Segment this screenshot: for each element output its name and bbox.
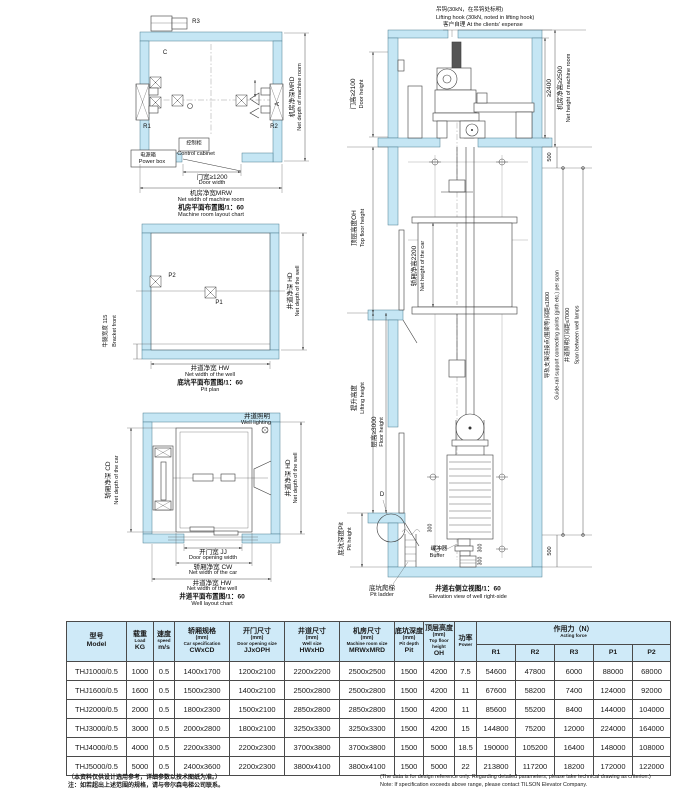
well-depth-cn: 井道净深 HD — [286, 459, 293, 496]
table-cell: 1400x1700 — [175, 662, 230, 681]
table-cell: THJ1000/0.5 — [67, 662, 127, 681]
table-cell: 144000 — [594, 700, 633, 719]
machine-room-door — [398, 60, 404, 71]
header-line-en: Top floor height — [425, 639, 454, 649]
table-cell: 3700x3800 — [340, 738, 395, 757]
table-row-THJ5000/0.5: THJ5000/0.550000.52400x36002200x23003800… — [67, 757, 671, 776]
column-header-0: 型号Model — [67, 622, 127, 662]
table-cell: 4200 — [424, 662, 455, 681]
dim-300-b: 300 — [478, 544, 483, 553]
door-height-en: Door height — [360, 80, 366, 109]
car-width-en: Net width of the car — [189, 571, 237, 577]
door-height-cn: 门高≥2100 — [351, 78, 358, 109]
table-cell: 1500x2300 — [175, 681, 230, 700]
header-line-code: CWxCD — [175, 647, 229, 655]
table-cell: 12000 — [555, 719, 594, 738]
table-cell: 88000 — [594, 662, 633, 681]
table-cell: 172000 — [594, 757, 633, 776]
header-line-code: Pit — [395, 647, 423, 655]
floor-height-en: Floor height — [380, 417, 386, 447]
header-line-code: OH — [424, 650, 454, 658]
table-cell: 4200 — [424, 681, 455, 700]
force-col-header-R1: R1 — [477, 645, 516, 662]
table-cell: 0.5 — [154, 757, 175, 776]
label-r1: R1 — [143, 124, 151, 130]
table-cell: 1500 — [395, 662, 424, 681]
well-lamp-symbol — [262, 427, 268, 433]
header-line-cn: 速度 — [154, 631, 174, 639]
table-cell: THJ3000/0.5 — [67, 719, 127, 738]
table-cell: 4000 — [127, 738, 154, 757]
table-cell: 2200x3300 — [175, 738, 230, 757]
table-cell: 67600 — [477, 681, 516, 700]
table-cell: 1500 — [395, 700, 424, 719]
header-line-cn: 功率 — [455, 635, 476, 643]
rail-spacing-cn: 导轨支架连接点(围梁等)间距≤1800 — [546, 292, 552, 378]
buffer-label-en: Buffer — [430, 554, 445, 560]
power-box-label-en: Power box — [139, 160, 165, 166]
label-r2: R2 — [270, 124, 278, 130]
lamp-spacing-cn: 井道照明灯间距≤7000 — [566, 308, 572, 363]
table-cell: 7400 — [555, 681, 594, 700]
table-cell: THJ4000/0.5 — [67, 738, 127, 757]
table-cell: 2200x2300 — [230, 757, 285, 776]
table-cell: 224000 — [594, 719, 633, 738]
header-line-code: KG — [127, 644, 153, 652]
well-width-en: Net width of the well — [187, 587, 237, 593]
mr-caption-en: Machine room layout chart — [178, 213, 244, 219]
table-cell: 3700x3800 — [285, 738, 340, 757]
buffer-label-cn: 缓冲器 — [431, 547, 448, 553]
machine-room-plan — [131, 16, 309, 193]
table-cell: 5000 — [424, 738, 455, 757]
force-col-header-P1: P1 — [594, 645, 633, 662]
table-cell: 0.5 — [154, 662, 175, 681]
table-cell: 148000 — [594, 738, 633, 757]
table-cell: 3000 — [127, 719, 154, 738]
header-line-en: Car specification — [176, 642, 227, 647]
buffer — [458, 539, 470, 546]
column-header-8: 顶层高度(mm)Top floor heightOH — [424, 622, 455, 662]
table-cell: 3250x3300 — [285, 719, 340, 738]
mr-height-cn: 机房净高≥2500 — [558, 66, 565, 110]
dim-500-bottom: 500 — [548, 546, 554, 555]
traction-machine — [408, 42, 534, 138]
well-depth-en: Net depth of the well — [294, 453, 300, 504]
table-cell: 11 — [455, 700, 477, 719]
well-caption-en: Well layout chart — [191, 602, 232, 608]
column-header-4: 开门尺寸(mm)Door opening sizeJJxOPH — [230, 622, 285, 662]
header-line-code: m/s — [154, 644, 174, 652]
table-cell: 0.5 — [154, 681, 175, 700]
table-cell: 1800x2100 — [230, 719, 285, 738]
table-cell: 5000 — [424, 757, 455, 776]
acting-force-en: Acting force — [482, 634, 665, 639]
footnotes: （本资料仅供设计选用参考，详细参数以技术图纸为准。） 注：如若超出上述范围的规格… — [68, 774, 674, 790]
force-col-header-R3: R3 — [555, 645, 594, 662]
note-cn-1: （本资料仅供设计选用参考，详细参数以技术图纸为准。） — [68, 774, 368, 782]
control-cabinet-label-en: Control cabinet — [177, 152, 215, 158]
dim-300-a: 300 — [428, 524, 433, 533]
column-header-9: 功率Power — [455, 622, 477, 662]
spec-table: 型号Model载重LoadKG速度speedm/s轿厢规格(mm)Car spe… — [66, 621, 671, 776]
force-col-header-R2: R2 — [516, 645, 555, 662]
table-cell: 3800x4100 — [340, 757, 395, 776]
floor-height-cn: 层高≥3000 — [372, 416, 379, 447]
header-line-mm: (mm) — [285, 636, 339, 642]
hook-note-en: Lifting hook (30kN, noted in lifting hoo… — [436, 16, 534, 22]
header-line-cn: 型号 — [67, 633, 126, 641]
label-a: A — [275, 102, 281, 106]
header-line-code: HWxHD — [285, 647, 339, 655]
pit-depth-en: Net depth of the well — [296, 266, 302, 317]
table-cell: 3800x4100 — [285, 757, 340, 776]
lifting-height-en: Lifting height — [361, 382, 367, 414]
table-cell: 58200 — [516, 681, 555, 700]
column-header-1: 载重LoadKG — [127, 622, 154, 662]
acting-force-cn: 作用力（N） — [477, 626, 670, 634]
note-cn-2: 注：如若超出上述范围的规格，请与帝尔森电梯公司联系。 — [68, 782, 368, 790]
pit-plan — [133, 224, 307, 369]
detail-d-label: D — [380, 492, 384, 498]
table-cell: 2200x2300 — [230, 738, 285, 757]
header-line-cn: 载重 — [127, 631, 153, 639]
lifting-height-cn: 提升高度 — [352, 385, 359, 411]
hook-note-cn: 吊钩(30kN，在吊钩处标明) — [436, 8, 503, 14]
table-cell: 122000 — [633, 757, 671, 776]
dim-2400: ≥2400 — [547, 79, 554, 97]
column-header-2: 速度speedm/s — [154, 622, 175, 662]
expense-note: 客户自理 At the clients' expense — [443, 23, 523, 29]
car-height-en: Net height of the car — [421, 241, 427, 291]
column-header-3: 轿厢规格(mm)Car specificationCWxCD — [175, 622, 230, 662]
table-cell: 1400x2100 — [230, 681, 285, 700]
header-line-mm: (mm) — [230, 636, 284, 642]
header-line-en: Machine room size — [341, 642, 392, 647]
bracket-label-en: Bracket front — [113, 315, 119, 347]
top-floor-en: Top floor height — [361, 209, 367, 247]
table-cell: 2850x2800 — [285, 700, 340, 719]
table-cell: 2500x2500 — [340, 662, 395, 681]
table-cell: 68000 — [633, 662, 671, 681]
table-row-THJ1000/0.5: THJ1000/0.510000.51400x17001200x21002200… — [67, 662, 671, 681]
note-en-1: (The data is for design reference only. … — [380, 774, 674, 782]
car-outline — [176, 428, 252, 532]
label-c: C — [163, 50, 167, 56]
table-cell: 54600 — [477, 662, 516, 681]
lower-landing-door — [399, 433, 404, 513]
elevation-caption-en: Elevation view of well right-side — [429, 595, 507, 601]
table-cell: THJ2000/0.5 — [67, 700, 127, 719]
technical-drawing — [0, 0, 691, 616]
table-cell: 1800x2300 — [175, 700, 230, 719]
header-line-mm: (mm) — [340, 636, 394, 642]
table-cell: 144800 — [477, 719, 516, 738]
mr-width-en: Net width of machine room — [178, 198, 245, 204]
table-cell: 16400 — [555, 738, 594, 757]
table-cell: 2400x3600 — [175, 757, 230, 776]
dim-300-c: 300 — [478, 557, 483, 566]
pit-width-en: Net width of the well — [185, 373, 235, 379]
control-cabinet-label-cn: 控制柜 — [186, 141, 202, 146]
table-cell: 22 — [455, 757, 477, 776]
table-cell: 8400 — [555, 700, 594, 719]
table-cell: 108000 — [633, 738, 671, 757]
pit-depth-cn: 井道净深 HD — [288, 272, 295, 309]
elevation-caption-cn: 井道右侧立视图/1：60 — [435, 587, 501, 594]
column-header-7: 底坑深度(mm)Pit depthPit — [395, 622, 424, 662]
header-line-code: MRWxMRD — [340, 647, 394, 655]
mr-door-width-en: Door width — [199, 181, 226, 187]
table-cell: 104000 — [633, 700, 671, 719]
table-cell: 7.5 — [455, 662, 477, 681]
table-cell: 4200 — [424, 700, 455, 719]
table-cell: 117200 — [516, 757, 555, 776]
car-depth-cn: 轿厢净深 CD — [106, 461, 113, 498]
table-cell: 1200x2100 — [230, 662, 285, 681]
header-line-en: Well size — [286, 642, 337, 647]
table-cell: 75200 — [516, 719, 555, 738]
header-line-code: Model — [67, 641, 126, 649]
table-cell: 2500x2800 — [285, 681, 340, 700]
label-r3: R3 — [192, 19, 200, 25]
pit-ladder — [402, 530, 420, 568]
power-box-label-cn: 电源箱 — [140, 153, 156, 158]
table-cell: 18200 — [555, 757, 594, 776]
header-line-mm: (mm) — [395, 636, 423, 642]
top-floor-cn: 顶层高度OH — [352, 210, 359, 246]
table-cell: THJ1600/0.5 — [67, 681, 127, 700]
table-row-THJ1600/0.5: THJ1600/0.516000.51500x23001400x21002500… — [67, 681, 671, 700]
counterweight-plan — [153, 446, 173, 510]
mr-height-en: Net height of machine room — [567, 54, 573, 123]
car-depth-en: Net depth of the car — [115, 455, 121, 504]
table-row-THJ4000/0.5: THJ4000/0.540000.52200x33002200x23003700… — [67, 738, 671, 757]
note-en-2: Note: If specification exceeds above ran… — [380, 782, 674, 790]
table-cell: 6000 — [555, 662, 594, 681]
table-cell: 18.5 — [455, 738, 477, 757]
mr-depth-en: Net depth of machine room — [298, 63, 304, 130]
table-cell: 2850x2800 — [340, 700, 395, 719]
table-cell: 2500x2800 — [340, 681, 395, 700]
well-lighting-en: Well lighting — [241, 421, 271, 427]
label-p1: P1 — [215, 300, 222, 306]
counterweight-elevation — [447, 147, 493, 567]
machine-r3 — [151, 16, 187, 31]
car-elevation — [412, 147, 517, 377]
table-cell: 2000x2800 — [175, 719, 230, 738]
acting-force-header: 作用力（N）Acting force — [477, 622, 671, 645]
table-cell: 2200x2200 — [285, 662, 340, 681]
column-header-6: 机房尺寸(mm)Machine room sizeMRWxMRD — [340, 622, 395, 662]
door-opening-en: Door opening width — [189, 556, 237, 562]
table-cell: 2000 — [127, 700, 154, 719]
rail-spacing-en: Guide-rail support connecting points (gi… — [555, 270, 560, 399]
table-cell: 124000 — [594, 681, 633, 700]
table-cell: 5000 — [127, 757, 154, 776]
header-line-en: Door opening size — [231, 642, 282, 647]
table-cell: 1500 — [395, 738, 424, 757]
table-cell: 1500 — [395, 719, 424, 738]
table-cell: 55200 — [516, 700, 555, 719]
table-cell: 1000 — [127, 662, 154, 681]
mr-depth-cn: 机房净深MRD — [290, 77, 297, 118]
table-cell: 0.5 — [154, 738, 175, 757]
table-cell: 3250x3300 — [340, 719, 395, 738]
table-cell: 213800 — [477, 757, 516, 776]
table-cell: 164000 — [633, 719, 671, 738]
label-p2: P2 — [168, 273, 175, 279]
table-cell: 47800 — [516, 662, 555, 681]
table-cell: 92000 — [633, 681, 671, 700]
header-line-en: speed — [155, 639, 174, 644]
table-cell: 105200 — [516, 738, 555, 757]
header-line-code: JJxOPH — [230, 647, 284, 655]
car-height-cn: 轿厢净高2200 — [412, 246, 419, 286]
table-row-THJ3000/0.5: THJ3000/0.530000.52000x28001800x21003250… — [67, 719, 671, 738]
pit-height-en: Pit height — [348, 527, 354, 550]
header-line-en: Power — [456, 643, 476, 648]
lamp-spacing-en: Span between well lamps — [575, 306, 580, 365]
table-cell: 1500 — [395, 681, 424, 700]
table-cell: 11 — [455, 681, 477, 700]
ladder-label-en: Pit ladder — [370, 593, 394, 599]
header-line-en: Load — [128, 639, 153, 644]
table-cell: 0.5 — [154, 700, 175, 719]
table-cell: THJ5000/0.5 — [67, 757, 127, 776]
table-cell: 85600 — [477, 700, 516, 719]
upper-landing-door — [399, 230, 404, 310]
header-line-mm: (mm) — [175, 636, 229, 642]
header-line-mm: (mm) — [424, 633, 454, 639]
dim-500-top: 500 — [548, 152, 554, 161]
table-cell: 0.5 — [154, 719, 175, 738]
table-cell: 1500 — [395, 757, 424, 776]
elevator-spec-sheet: R3 C R1 R2 A 控制柜 Control cabinet 电源箱 Pow… — [0, 0, 691, 812]
bracket-label-cn: 牛腿宽度 115 — [104, 315, 110, 348]
table-cell: 4200 — [424, 719, 455, 738]
force-col-header-P2: P2 — [633, 645, 671, 662]
header-line-en: Pit depth — [396, 642, 423, 647]
pit-caption-en: Pit plan — [201, 388, 220, 394]
table-cell: 1500x2100 — [230, 700, 285, 719]
column-header-5: 井道尺寸(mm)Well sizeHWxHD — [285, 622, 340, 662]
table-cell: 15 — [455, 719, 477, 738]
table-row-THJ2000/0.5: THJ2000/0.520000.51800x23001500x21002850… — [67, 700, 671, 719]
table-cell: 190000 — [477, 738, 516, 757]
pit-height-cn: 底坑深度Pit — [339, 522, 346, 556]
table-cell: 1600 — [127, 681, 154, 700]
